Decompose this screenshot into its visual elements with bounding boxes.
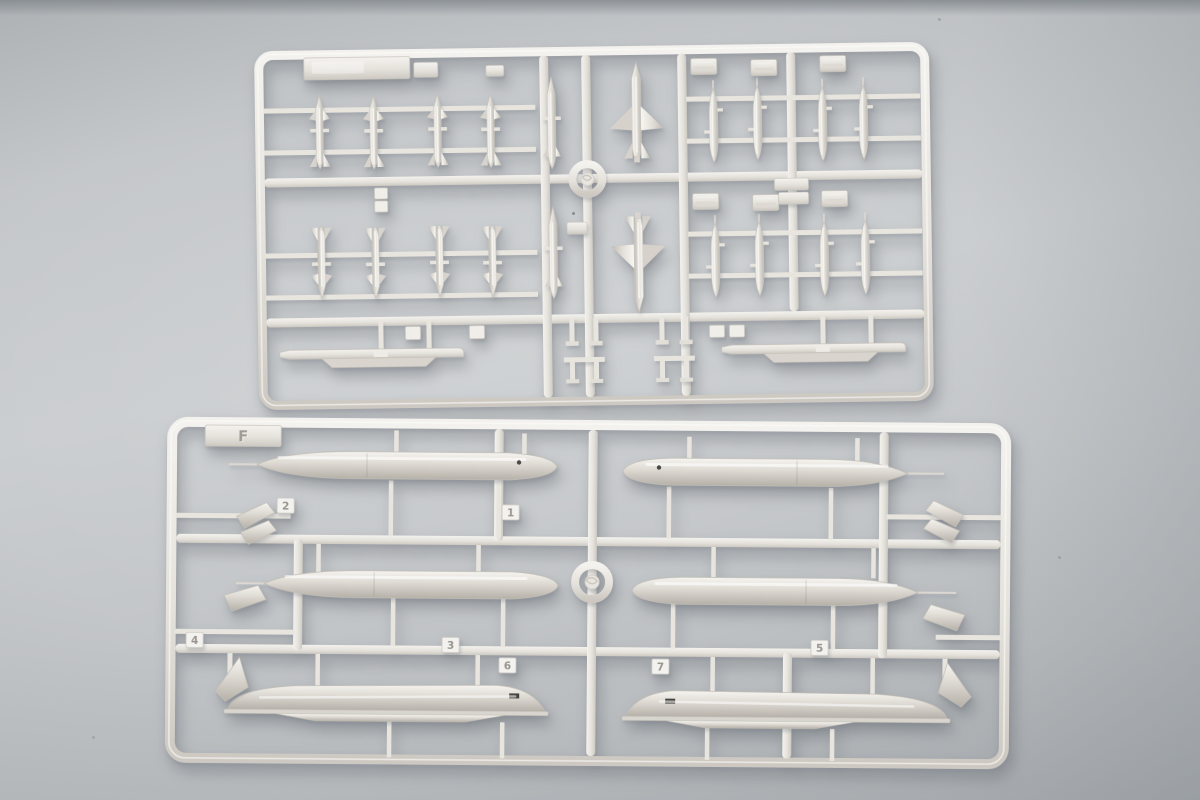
small-missile <box>363 96 385 169</box>
small-missile <box>364 226 386 299</box>
small-drop-tank <box>853 77 873 159</box>
small-drop-tank <box>705 215 725 297</box>
tag-7: 7 <box>652 659 669 674</box>
runner-pin <box>868 315 873 344</box>
runner-branch <box>687 135 921 143</box>
sprue-top <box>254 41 935 410</box>
small-missile <box>310 226 332 299</box>
pylon-block <box>779 192 809 204</box>
small-drop-tank <box>747 78 767 160</box>
small-drop-tank <box>812 79 832 161</box>
launch-rail <box>722 343 906 364</box>
tag-5: 5 <box>811 640 828 655</box>
pylon-block <box>751 59 777 75</box>
launch-rail <box>280 348 464 369</box>
runner-branch <box>266 292 538 301</box>
pylon-block <box>691 58 717 74</box>
pylon-block <box>774 178 808 190</box>
photo-scene: F F <box>0 0 1200 800</box>
small-drop-tank <box>855 212 875 294</box>
small-drop-tank <box>814 214 834 296</box>
fin-plate <box>923 605 965 631</box>
shell-keel <box>665 721 855 729</box>
tag-1-label: 1 <box>507 507 514 519</box>
pylon-block <box>820 55 846 71</box>
runner-branch <box>688 228 922 236</box>
adapter-block <box>567 222 587 234</box>
runner-branch <box>936 635 1001 641</box>
small-finned-missiles <box>309 93 504 300</box>
runner-branch <box>689 270 923 278</box>
pylon-block <box>753 194 779 210</box>
adapter-block <box>486 65 504 76</box>
pylon-block <box>822 190 848 206</box>
small-square-part <box>469 326 484 339</box>
drop-tank <box>623 458 908 487</box>
small-drop-tank <box>749 214 769 296</box>
runner-branch <box>176 513 291 519</box>
winged-missile <box>611 212 666 313</box>
small-drop-tank <box>703 80 723 162</box>
small-missile <box>481 224 503 297</box>
tag-4: 4 <box>186 632 203 647</box>
winged-missile <box>609 62 664 163</box>
sprue-bottom: F F <box>165 417 1012 772</box>
small-missile <box>428 224 450 297</box>
tag-3-label: 3 <box>447 640 454 652</box>
runner-vertical-center <box>586 430 598 756</box>
dust-speck <box>938 18 941 21</box>
pin-cluster <box>563 318 605 384</box>
runner-branch <box>686 93 920 101</box>
fin-plate <box>224 585 266 611</box>
sprue-top-svg <box>254 41 935 410</box>
runner-branch <box>265 250 537 259</box>
drop-tank <box>632 577 918 606</box>
drop-tank <box>257 451 557 480</box>
sprue-top-label-tab <box>304 57 410 80</box>
drop-tank <box>264 570 558 599</box>
sprue-bottom-label-text: F <box>238 427 248 445</box>
tag-5-label: 5 <box>816 643 823 655</box>
adapter-block <box>414 62 438 77</box>
dust-speck <box>1058 556 1061 559</box>
tag-1: 1 <box>502 505 519 520</box>
tag-7-label: 7 <box>657 662 664 674</box>
shell-keel <box>275 714 505 723</box>
runner-pin <box>378 321 383 350</box>
runner-pin <box>426 320 431 349</box>
dust-speck <box>92 736 95 739</box>
drop-tank-row1 <box>229 451 944 488</box>
blank-number-tag <box>374 188 387 199</box>
small-square-part <box>729 325 744 337</box>
small-square-part <box>405 326 420 339</box>
tag-2: 2 <box>277 498 294 513</box>
sprue-bottom-label-tab: F F <box>205 425 281 447</box>
fin-chevron <box>923 501 963 543</box>
sprue-bottom-svg: F F <box>165 417 1012 772</box>
tag-6-label: 6 <box>504 660 511 672</box>
pylon-block <box>693 193 719 209</box>
tag-6: 6 <box>499 658 516 673</box>
tag-4-label: 4 <box>191 635 198 647</box>
small-square-part <box>709 325 724 337</box>
small-missile <box>309 96 331 169</box>
tag-3: 3 <box>442 637 459 652</box>
tag-2-label: 2 <box>282 501 289 513</box>
blank-number-tag <box>375 201 388 212</box>
small-missile <box>480 94 502 167</box>
runner-pin <box>820 316 825 345</box>
runner-vertical <box>677 54 691 396</box>
small-missile <box>427 94 449 167</box>
